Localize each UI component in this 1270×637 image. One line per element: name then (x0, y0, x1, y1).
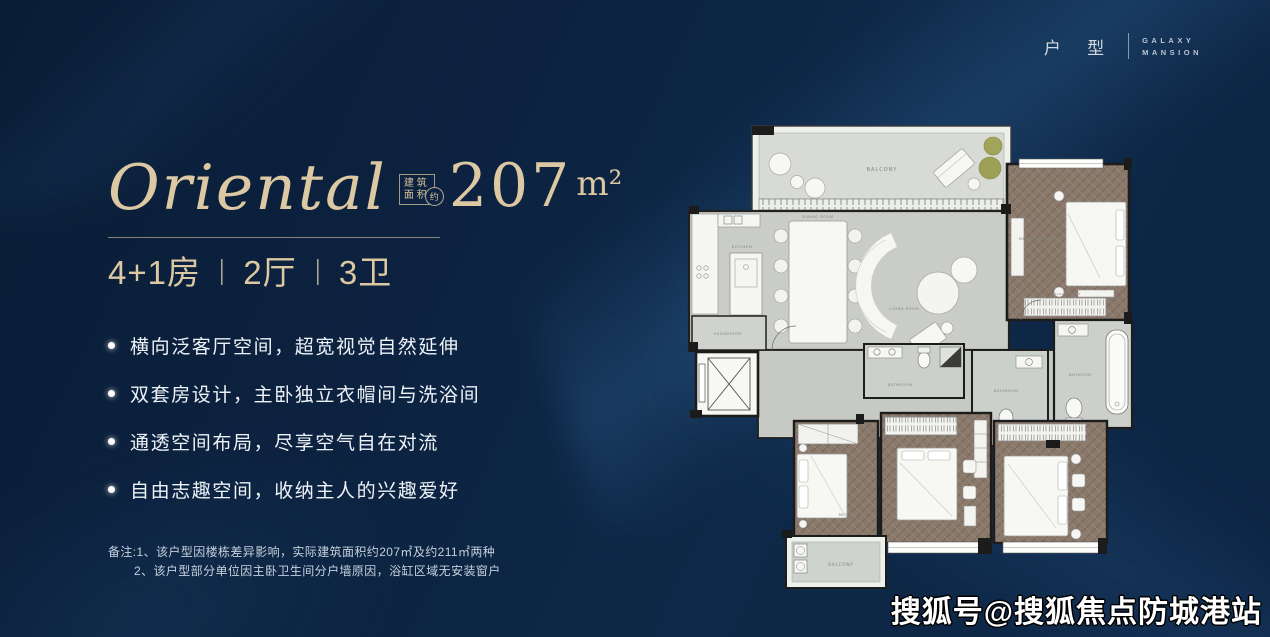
brand-line2: MANSION (1142, 48, 1202, 57)
room-label: LIVING ROOM (889, 307, 919, 311)
room-label: BEDROOM (916, 440, 935, 444)
room-label: DINING ROOM (803, 215, 834, 219)
room-label: KITCHEN (732, 244, 753, 249)
unit-spec: 4+1房 | 2厅 | 3卫 (108, 246, 392, 294)
feature-item: 双套房设计，主卧独立衣帽间与洗浴间 (108, 382, 480, 404)
room-label: BEDROOM (839, 513, 858, 517)
area-unit: m² (576, 164, 622, 204)
plan-elevator (696, 352, 758, 416)
plan-bottom-balcony: BALCONY (786, 536, 886, 588)
category-label: 户 型 (1044, 34, 1115, 59)
area-prefix-badge: 建筑 面积 约 (399, 174, 435, 205)
plan-top-balcony: BALCONY (752, 126, 1011, 214)
feature-item: 横向泛客厅空间，超宽视觉自然延伸 (108, 334, 480, 356)
room-label: BALCONY (867, 167, 898, 173)
floorplan-image: BALCONY KITCHEN (676, 118, 1138, 592)
approx-circle: 约 (425, 187, 444, 206)
room-label: BEDROOM (1027, 448, 1046, 452)
room-label: MASTER BEDROOM (1019, 237, 1057, 241)
unit-title: Oriental 建筑 面积 约 207 m² (108, 150, 622, 226)
room-label: HOUSEKEEPER (714, 332, 742, 336)
room-label: BATHROOM (888, 383, 913, 387)
feature-item: 通透空间布局，尽享空气自在对流 (108, 430, 480, 452)
spec-separator: | (315, 254, 320, 286)
feature-text: 通透空间布局，尽享空气自在对流 (130, 428, 439, 455)
room-label: BALCONY (828, 562, 854, 567)
area-prefix-line1: 建筑 (404, 178, 430, 190)
plan-bedroom-2: BEDROOM (881, 413, 991, 543)
brand-line1: GALAXY (1142, 36, 1202, 45)
title-divider-line (108, 237, 440, 238)
plan-bedroom-1: BEDROOM (794, 421, 878, 543)
spec-rooms: 4+1房 (108, 246, 201, 294)
bullet-dot-icon (108, 342, 115, 349)
brand-header: 户 型 GALAXY MANSION (1044, 33, 1202, 59)
bullet-dot-icon (108, 438, 115, 445)
room-label: WALK-IN CLOSET (1051, 292, 1080, 296)
spec-halls: 2厅 (243, 246, 296, 294)
brand-divider (1128, 33, 1129, 59)
feature-text: 横向泛客厅空间，超宽视觉自然延伸 (130, 332, 460, 359)
brand-logotype: GALAXY MANSION (1142, 36, 1202, 57)
feature-text: 自由志趣空间，收纳主人的兴趣爱好 (130, 476, 460, 503)
watermark: 搜狐号@搜狐焦点防城港站 (891, 587, 1262, 631)
bullet-dot-icon (108, 390, 115, 397)
plan-bedroom-3: BEDROOM (994, 421, 1107, 543)
footnote-line: 2、该户型部分单位因主卧卫生间分户墙原因，浴缸区域无安装窗户 (108, 562, 501, 581)
plan-bathroom-a: BATHROOM (864, 344, 964, 398)
feature-item: 自由志趣空间，收纳主人的兴趣爱好 (108, 478, 480, 500)
area-value: 207 (449, 150, 573, 222)
footnotes: 备注:1、该户型因楼栋差异影响，实际建筑面积约207㎡及约211㎡两种 2、该户… (108, 543, 501, 581)
unit-name: Oriental (108, 150, 387, 226)
plan-master-bath: BATHROOM (1054, 320, 1132, 428)
room-label: BATHROOM (1069, 373, 1092, 377)
footnote-line: 备注:1、该户型因楼栋差异影响，实际建筑面积约207㎡及约211㎡两种 (108, 543, 501, 562)
plan-master-bedroom: MASTER BEDROOM WALK-IN CLOSET (1007, 159, 1129, 320)
poster: { "header": { "category": "户 型", "brand_… (0, 0, 1270, 637)
bullet-dot-icon (108, 486, 115, 493)
feature-list: 横向泛客厅空间，超宽视觉自然延伸 双套房设计，主卧独立衣帽间与洗浴间 通透空间布… (108, 334, 480, 526)
feature-text: 双套房设计，主卧独立衣帽间与洗浴间 (130, 380, 480, 407)
spec-separator: | (220, 254, 225, 286)
spec-baths: 3卫 (339, 246, 392, 294)
room-label: BATHROOM (994, 389, 1019, 393)
